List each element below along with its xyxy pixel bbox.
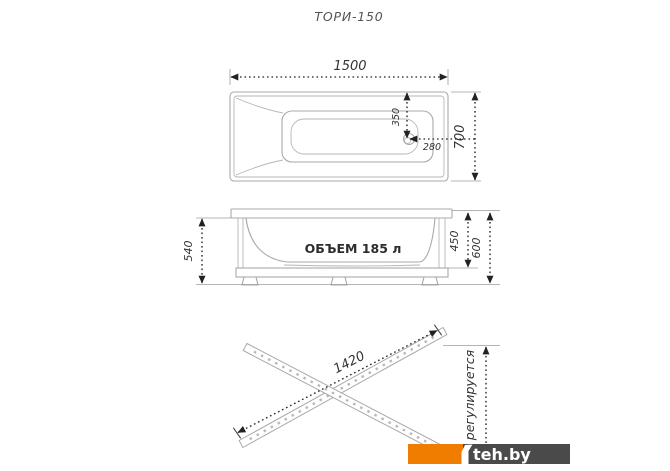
side-view-leg-right <box>422 277 438 285</box>
side-view-base-frame <box>236 268 448 277</box>
side-view-leg-middle <box>331 277 347 285</box>
side-view-rim <box>231 209 452 218</box>
watermark-orange-block <box>408 444 463 464</box>
top-view-rim-edge <box>234 96 444 177</box>
top-view-headrest-slope-top <box>236 98 283 113</box>
frame-rail-ascending <box>239 328 447 448</box>
dim-280-label: 280 <box>423 142 441 153</box>
dim-1420-tick-start <box>233 428 240 439</box>
top-view-headrest-slope-bottom <box>236 160 283 175</box>
watermark-domain-label: teh.by <box>473 445 531 464</box>
top-view: 1500 700 350 280 <box>230 59 481 181</box>
diagram-canvas: ТОРИ-150 1500 700 350 <box>0 0 670 471</box>
adjustable-label: регулируется <box>462 349 477 441</box>
dim-1420-line <box>238 331 437 433</box>
bathtub-dimension-diagram: ТОРИ-150 1500 700 350 <box>0 0 670 471</box>
dim-700-label: 700 <box>453 125 468 150</box>
volume-label: ОБЪЕМ 185 л <box>305 241 402 256</box>
side-view-bowl-floor <box>284 265 420 266</box>
dim-540-label: 540 <box>182 241 195 262</box>
side-view: ОБЪЕМ 185 л 540 450 600 <box>182 209 500 285</box>
dim-1500-label: 1500 <box>333 59 366 74</box>
drain-inner-icon <box>405 137 411 143</box>
side-view-leg-left <box>242 277 258 285</box>
dim-450-label: 450 <box>448 231 461 252</box>
drawing-title: ТОРИ-150 <box>314 9 383 24</box>
frame-view: 1420 регулируется <box>233 325 500 456</box>
dim-350-label: 350 <box>391 108 402 126</box>
top-view-outer-edge <box>230 92 448 181</box>
watermark-banner: teh.by <box>408 444 570 464</box>
dim-600-label: 600 <box>470 238 483 259</box>
